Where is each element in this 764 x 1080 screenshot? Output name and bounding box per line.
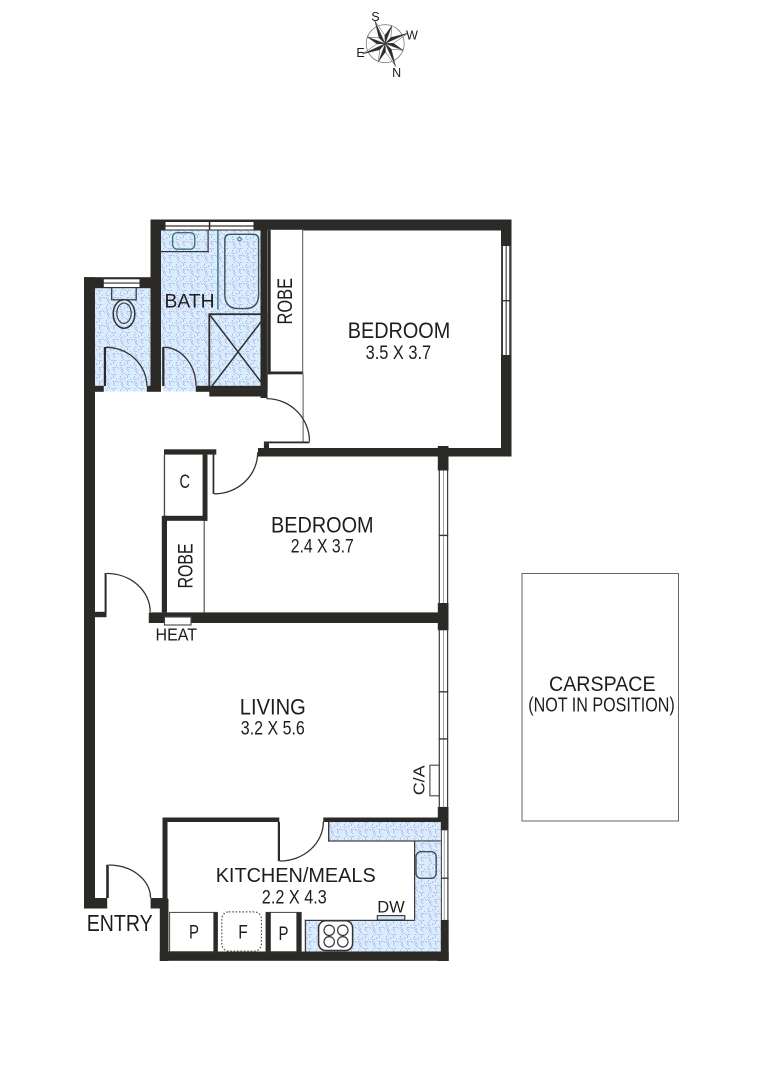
svg-text:BEDROOM: BEDROOM <box>271 512 374 537</box>
svg-text:S: S <box>371 10 379 24</box>
svg-text:HEAT: HEAT <box>156 624 198 644</box>
svg-text:ROBE: ROBE <box>175 543 198 588</box>
svg-text:C: C <box>179 472 190 493</box>
svg-text:BATH: BATH <box>165 291 215 312</box>
svg-text:F: F <box>238 922 248 944</box>
svg-text:(NOT IN POSITION): (NOT IN POSITION) <box>528 695 675 717</box>
svg-text:N: N <box>392 66 401 80</box>
svg-text:E: E <box>356 46 364 60</box>
svg-text:ROBE: ROBE <box>274 278 297 325</box>
svg-text:W: W <box>406 29 418 43</box>
svg-text:CARSPACE: CARSPACE <box>549 672 656 696</box>
svg-text:3.2 X 5.6: 3.2 X 5.6 <box>241 718 305 740</box>
svg-text:KITCHEN/MEALS: KITCHEN/MEALS <box>216 864 376 887</box>
svg-text:P: P <box>189 922 199 944</box>
svg-text:C/A: C/A <box>411 765 428 796</box>
svg-text:2.4 X 3.7: 2.4 X 3.7 <box>291 535 354 557</box>
svg-text:P: P <box>279 923 289 945</box>
svg-text:BEDROOM: BEDROOM <box>348 318 451 343</box>
svg-text:ENTRY: ENTRY <box>87 910 153 936</box>
svg-text:LIVING: LIVING <box>240 695 306 720</box>
svg-text:3.5 X 3.7: 3.5 X 3.7 <box>366 342 432 364</box>
svg-text:2.2 X 4.3: 2.2 X 4.3 <box>262 887 327 909</box>
svg-text:DW: DW <box>377 898 405 917</box>
